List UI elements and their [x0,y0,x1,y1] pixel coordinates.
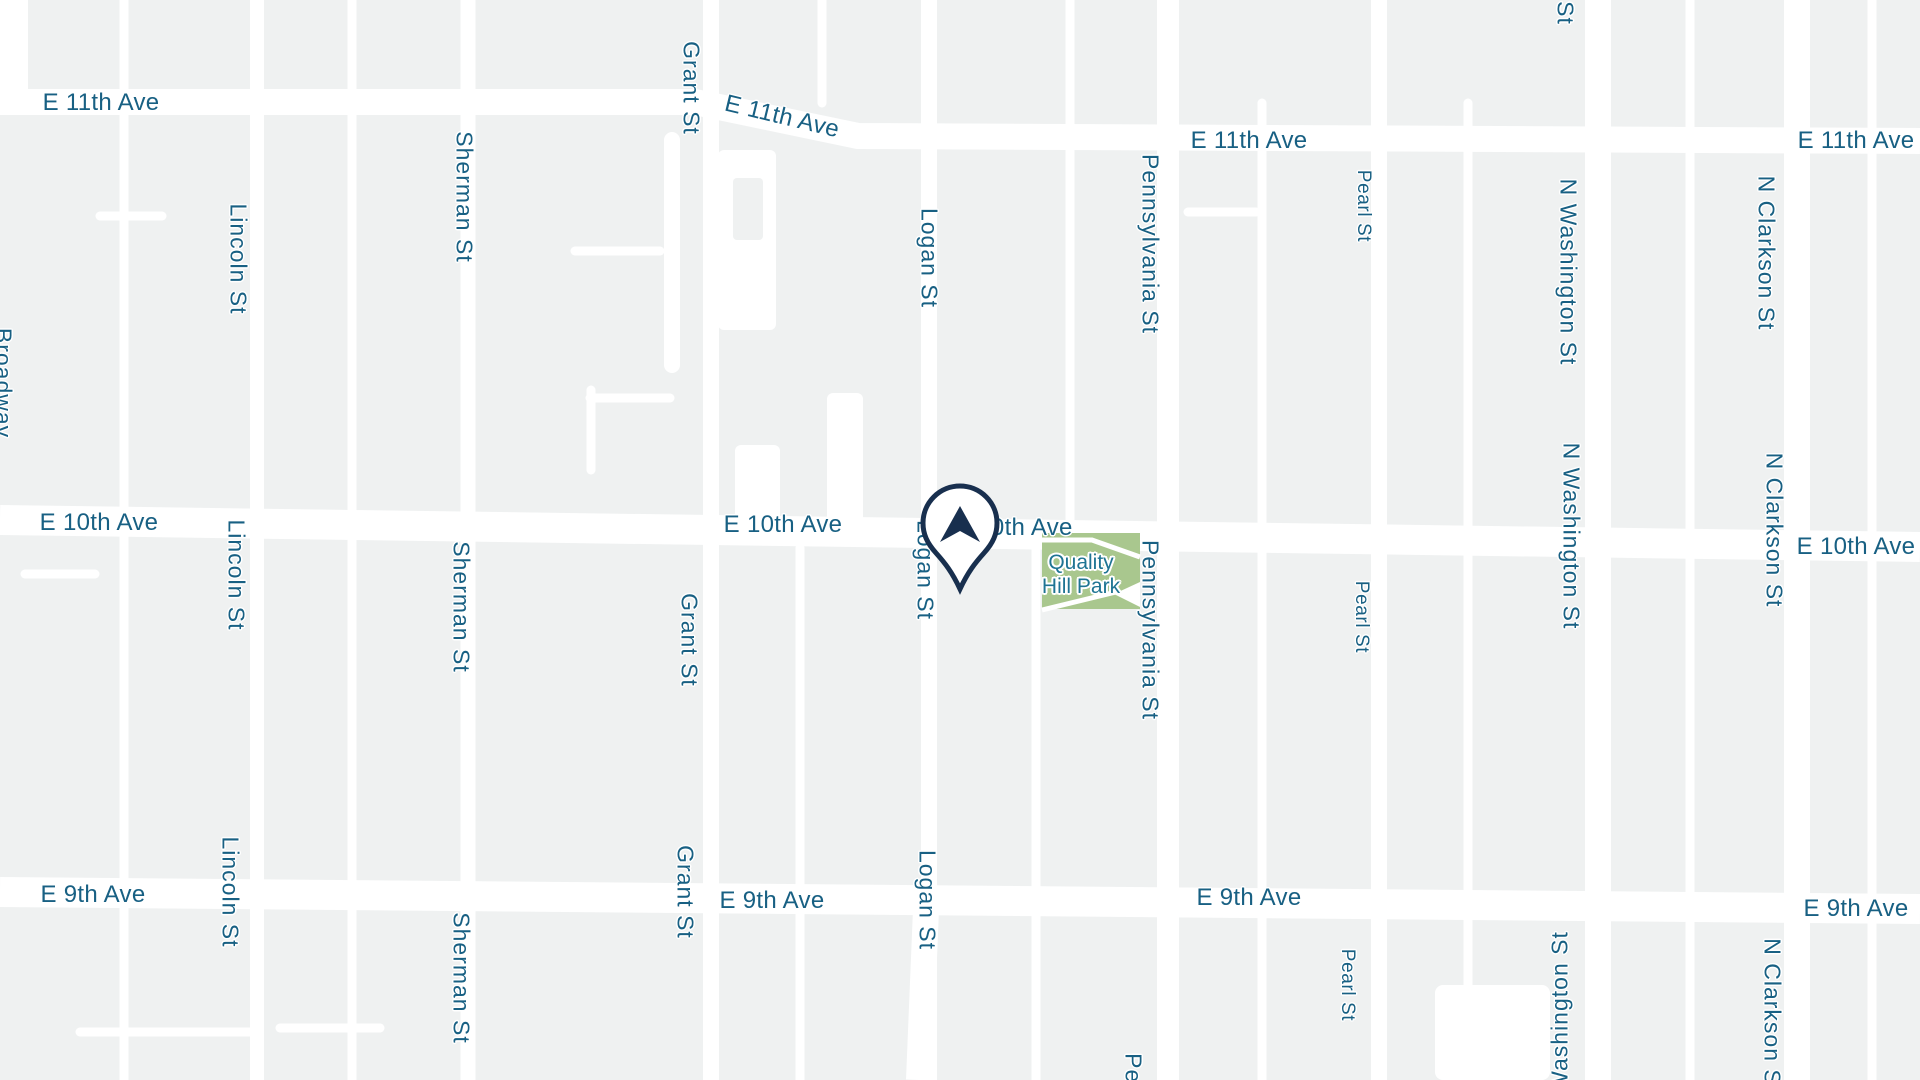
avenue-label-e10th-left: E 10th Ave [40,509,159,537]
street-label-grant-mid: Grant St [676,593,703,687]
street-label-n-clarkson-mid: N Clarkson St [1761,453,1788,608]
park-label-line1: Quality [1048,551,1113,575]
street-label-fragment-st-top: St [1552,1,1579,25]
street-label-pennsylvania-bottom-fragment: Penn [1120,1053,1147,1080]
street-label-n-washington-mid: N Washington St [1558,443,1585,630]
pin-teardrop [923,486,997,589]
street-label-pearl-mid: Pearl St [1350,581,1372,653]
street-label-logan-bottom: Logan St [914,850,941,950]
avenue-label-e9th-centerleft: E 9th Ave [719,887,824,915]
avenue-label-e9th-center: E 9th Ave [1196,884,1301,912]
street-label-lincoln-mid: Lincoln St [223,519,250,630]
road-e-9th-ave [0,892,1920,909]
street-label-n-washington-top: N Washington St [1555,179,1582,366]
street-label-sherman-top: Sherman St [451,131,478,262]
street-label-n-clarkson-bottom: N Clarkson S [1759,938,1786,1080]
avenue-label-e9th-left: E 9th Ave [40,881,145,909]
street-label-lincoln-bottom: Lincoln St [217,836,244,947]
street-label-grant-bottom: Grant St [672,845,699,939]
avenue-label-e9th-right: E 9th Ave [1803,895,1908,923]
street-label-pearl-top: Pearl St [1352,170,1374,242]
avenue-label-e11th-right: E 11th Ave [1798,127,1915,155]
street-label-logan-top: Logan St [916,208,943,308]
street-label-pennsylvania-mid: Pennsylvania St [1137,540,1164,720]
street-label-washington-bottom: Washington St [1547,931,1574,1080]
street-label-sherman-mid: Sherman St [448,541,475,672]
street-label-n-clarkson-top: N Clarkson St [1753,176,1780,331]
avenue-label-e11th-left: E 11th Ave [43,89,160,117]
map-viewport[interactable]: E 11th Ave E 11th Ave E 11th Ave E 11th … [0,0,1920,1080]
avenue-label-e11th-center: E 11th Ave [1191,127,1308,155]
street-label-sherman-bottom: Sherman St [448,912,475,1043]
street-label-lincoln-top: Lincoln St [225,203,252,314]
avenue-label-e10th-center: E 10th Ave [724,511,843,539]
park-label-line2: Hill Park [1042,575,1120,599]
street-label-grant-top: Grant St [678,41,705,135]
street-label-pearl-bottom: Pearl St [1336,949,1358,1021]
location-pin-icon[interactable] [915,483,1005,595]
avenue-label-e10th-right: E 10th Ave [1797,533,1916,561]
street-label-broadway: Broadway [0,328,17,438]
street-label-pennsylvania-top: Pennsylvania St [1137,154,1164,334]
